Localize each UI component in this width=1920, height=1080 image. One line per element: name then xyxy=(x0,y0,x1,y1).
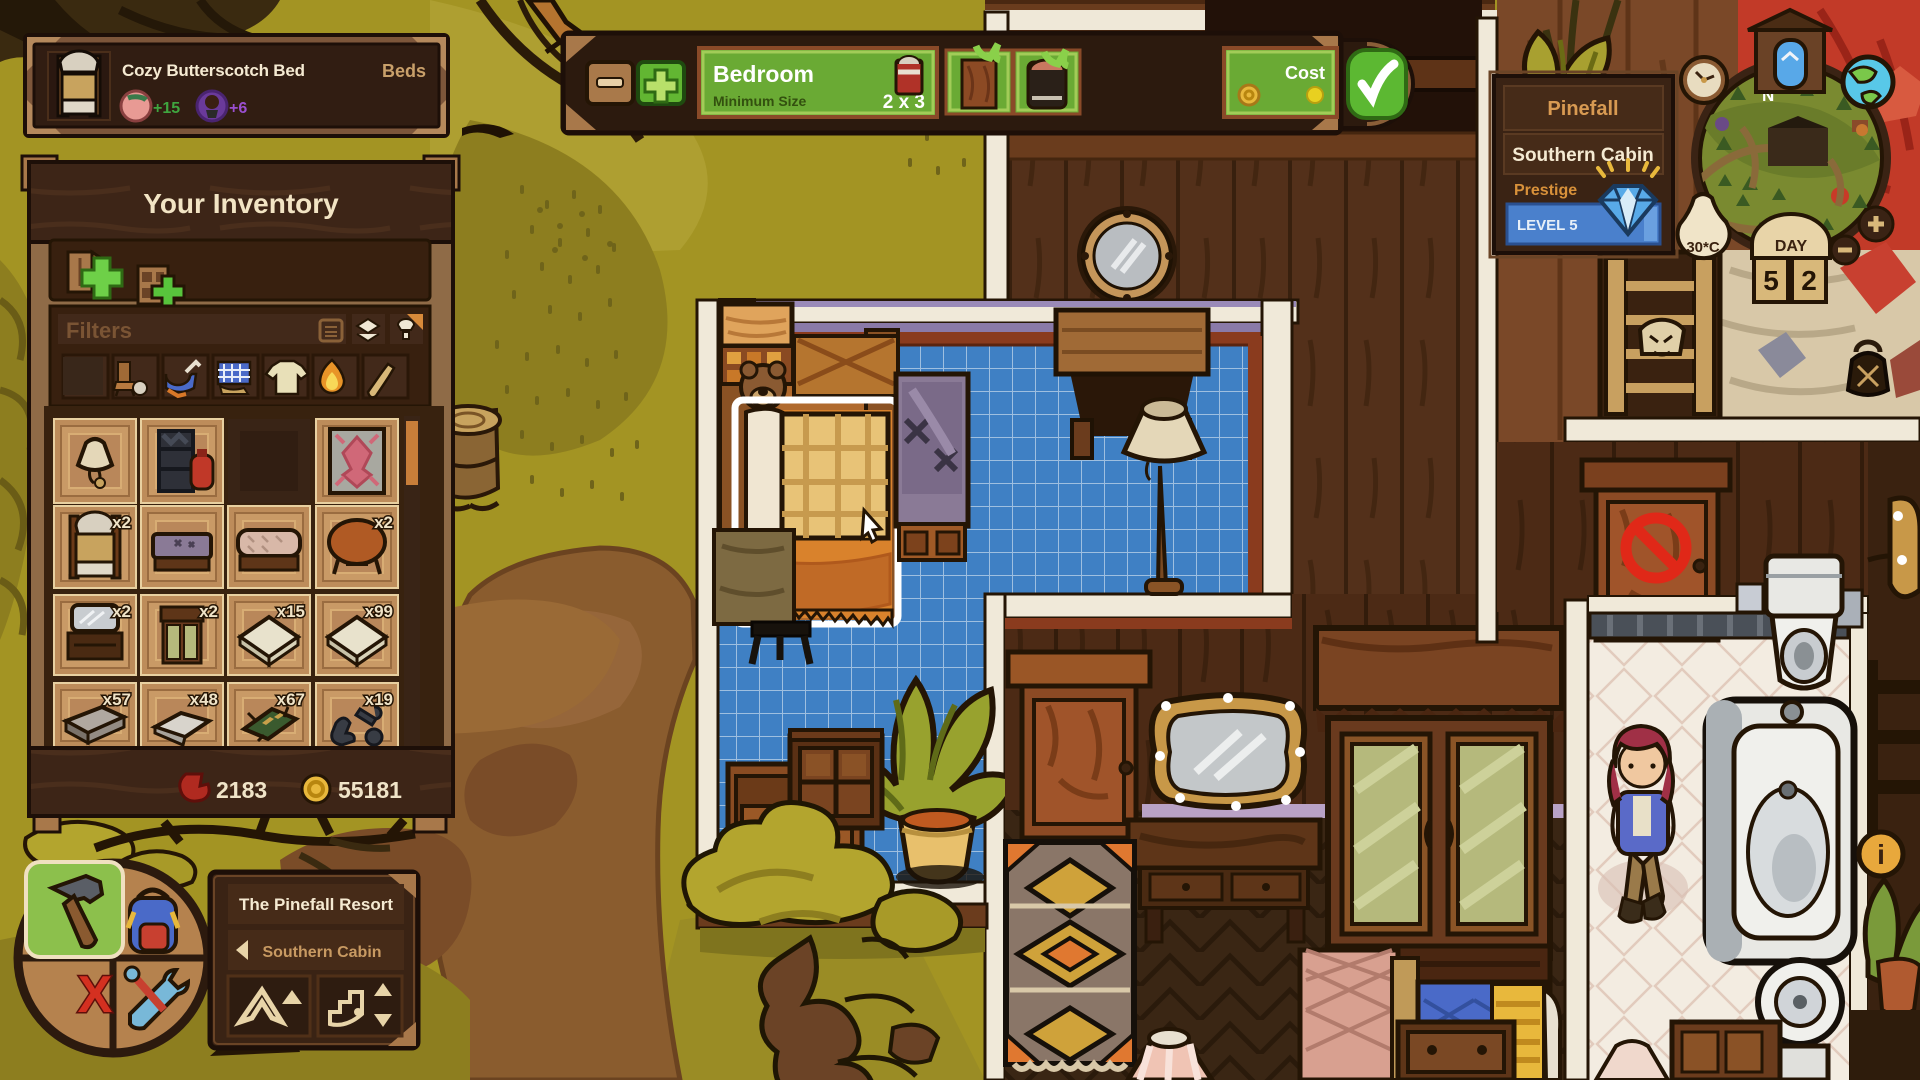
svg-text:x2: x2 xyxy=(199,602,218,621)
svg-text:Pinefall: Pinefall xyxy=(1547,98,1618,120)
svg-text:x2: x2 xyxy=(112,513,131,532)
svg-text:x57: x57 xyxy=(103,690,131,709)
svg-text:+15: +15 xyxy=(153,100,180,117)
svg-text:Minimum Size: Minimum Size xyxy=(713,93,807,109)
svg-text:30*C: 30*C xyxy=(1686,239,1720,256)
svg-text:Your Inventory: Your Inventory xyxy=(143,188,339,219)
svg-text:Bedroom: Bedroom xyxy=(713,61,814,87)
svg-text:Cost: Cost xyxy=(1285,63,1325,83)
svg-text:5: 5 xyxy=(1763,265,1779,296)
svg-text:X: X xyxy=(78,966,113,1024)
svg-text:x19: x19 xyxy=(365,690,393,709)
svg-text:Filters: Filters xyxy=(66,318,132,343)
svg-text:x15: x15 xyxy=(277,602,305,621)
svg-text:2: 2 xyxy=(1801,265,1817,296)
svg-text:x48: x48 xyxy=(190,690,218,709)
svg-text:x67: x67 xyxy=(277,690,305,709)
svg-text:+6: +6 xyxy=(229,100,247,117)
svg-text:The Pinefall Resort: The Pinefall Resort xyxy=(239,895,393,914)
svg-text:Southern Cabin: Southern Cabin xyxy=(262,944,381,961)
svg-text:Southern Cabin: Southern Cabin xyxy=(1512,145,1653,166)
svg-text:2183: 2183 xyxy=(216,777,267,803)
svg-text:x2: x2 xyxy=(374,513,393,532)
svg-text:Cozy Butterscotch Bed: Cozy Butterscotch Bed xyxy=(122,61,305,80)
svg-text:x2: x2 xyxy=(112,602,131,621)
svg-text:i: i xyxy=(1877,839,1885,870)
svg-text:DAY: DAY xyxy=(1775,238,1808,255)
svg-text:x99: x99 xyxy=(365,602,393,621)
svg-text:55181: 55181 xyxy=(338,777,402,803)
svg-text:LEVEL 5: LEVEL 5 xyxy=(1517,217,1578,234)
svg-text:Beds: Beds xyxy=(382,61,426,81)
svg-text:Prestige: Prestige xyxy=(1514,182,1577,199)
